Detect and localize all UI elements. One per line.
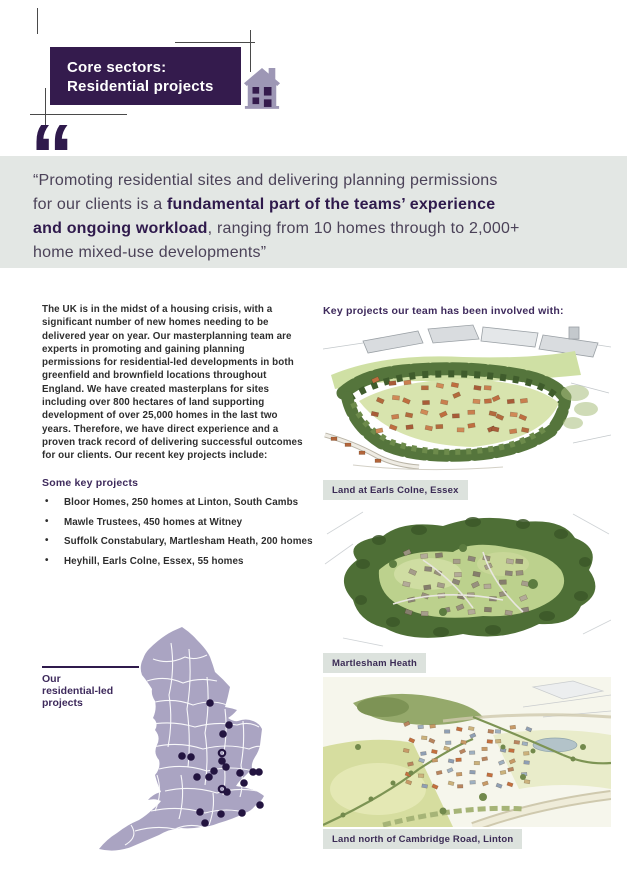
project-location-dot <box>222 763 230 771</box>
illustration-cambridge-road-linton <box>323 677 611 827</box>
crop-mark <box>175 42 255 43</box>
project-location-dot <box>205 773 213 781</box>
house-icon <box>243 65 281 109</box>
quote-line: , ranging from 10 homes through to 2,000… <box>208 220 520 237</box>
list-item: Suffolk Constabulary, Martlesham Heath, … <box>44 536 314 547</box>
brochure-page: Core sectors: Residential projects “ “Pr… <box>0 0 627 888</box>
crop-mark <box>37 8 38 34</box>
project-location-dot <box>236 769 244 777</box>
illustration-martlesham-heath <box>323 504 611 648</box>
project-location-dot <box>210 767 218 775</box>
right-column-heading: Key projects our team has been involved … <box>323 305 564 317</box>
project-location-dot <box>187 753 195 761</box>
illustration-earls-colne <box>323 323 611 471</box>
project-location-dot <box>196 808 204 816</box>
project-location-dot <box>238 809 246 817</box>
caption-cambridge-road-linton: Land north of Cambridge Road, Linton <box>323 829 522 849</box>
page-title: Core sectors: Residential projects <box>50 47 241 105</box>
caption-martlesham-heath: Martlesham Heath <box>323 653 426 673</box>
project-location-dot <box>206 699 214 707</box>
quote-text: “Promoting residential sites and deliver… <box>33 169 593 265</box>
list-item: Heyhill, Earls Colne, Essex, 55 homes <box>44 556 314 567</box>
project-location-dot <box>256 801 264 809</box>
page-title-line2: Residential projects <box>67 77 241 96</box>
quote-line: “Promoting residential sites and deliver… <box>33 172 498 189</box>
caption-earls-colne: Land at Earls Colne, Essex <box>323 480 468 500</box>
project-location-dot <box>240 779 248 787</box>
quote-bold: and ongoing workload <box>33 220 208 237</box>
project-location-dot <box>219 730 227 738</box>
project-location-dot <box>255 768 263 776</box>
quote-line: for our clients is a <box>33 196 167 213</box>
project-location-dot <box>225 721 233 729</box>
intro-paragraph: The UK is in the midst of a housing cris… <box>42 303 304 463</box>
key-projects-heading: Some key projects <box>42 477 138 489</box>
project-location-dot <box>178 752 186 760</box>
quote-bold: fundamental part of the teams’ experienc… <box>167 196 495 213</box>
list-item: Bloor Homes, 250 homes at Linton, South … <box>44 497 314 508</box>
project-location-dot <box>223 788 231 796</box>
quote-line: home mixed-use developments” <box>33 244 266 261</box>
key-projects-list: Bloor Homes, 250 homes at Linton, South … <box>44 497 314 575</box>
project-location-dot <box>217 810 225 818</box>
page-title-line1: Core sectors: <box>67 58 241 77</box>
project-location-dot <box>193 773 201 781</box>
england-projects-map <box>95 625 265 855</box>
list-item: Mawle Trustees, 450 homes at Witney <box>44 517 314 528</box>
project-location-dot <box>201 819 209 827</box>
england-outline <box>99 627 264 851</box>
